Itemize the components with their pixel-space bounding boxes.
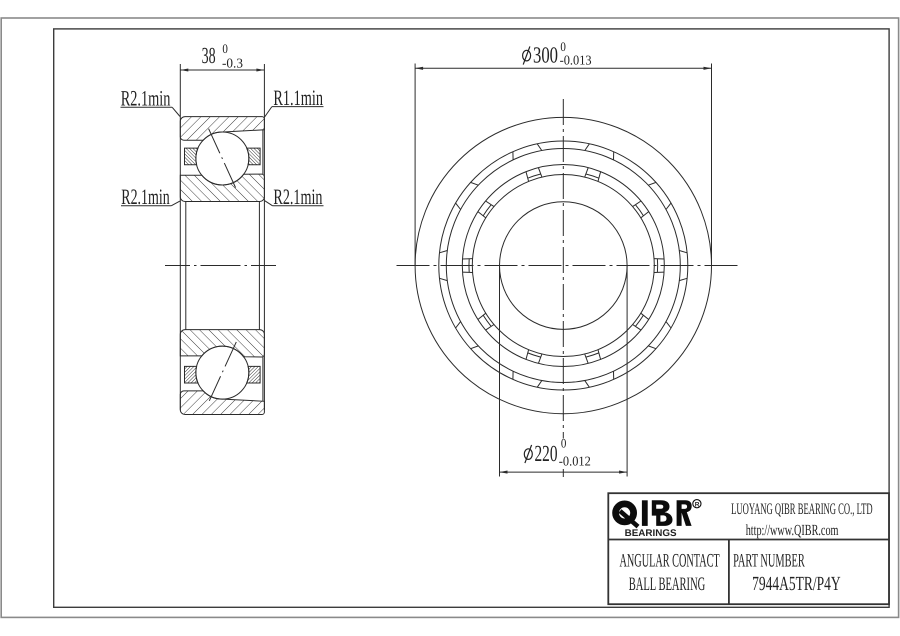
svg-text:38: 38 <box>202 43 216 68</box>
svg-text:BEARINGS: BEARINGS <box>625 528 678 539</box>
svg-text:-0.013: -0.013 <box>560 53 592 68</box>
svg-text:0: 0 <box>222 41 228 56</box>
svg-text:http://www.QIBR.com: http://www.QIBR.com <box>746 522 839 539</box>
svg-text:BALL BEARING: BALL BEARING <box>629 574 706 595</box>
svg-text:R: R <box>695 501 700 508</box>
svg-text:LUOYANG QIBR BEARING CO., LTD: LUOYANG QIBR BEARING CO., LTD <box>731 501 873 518</box>
svg-text:-0.012: -0.012 <box>559 454 591 469</box>
svg-text:R1.1min: R1.1min <box>273 85 323 110</box>
svg-text:300: 300 <box>533 43 558 68</box>
svg-text:PART NUMBER: PART NUMBER <box>733 551 805 572</box>
svg-text:0: 0 <box>561 436 567 451</box>
svg-text:220: 220 <box>535 441 558 466</box>
svg-text:R2.1min: R2.1min <box>273 184 322 209</box>
svg-text:-0.3: -0.3 <box>222 55 243 70</box>
svg-text:7944A5TR/P4Y: 7944A5TR/P4Y <box>752 573 841 595</box>
svg-text:ANGULAR CONTACT: ANGULAR CONTACT <box>620 551 720 572</box>
svg-text:R2.1min: R2.1min <box>121 184 169 209</box>
svg-text:R2.1min: R2.1min <box>121 86 171 111</box>
